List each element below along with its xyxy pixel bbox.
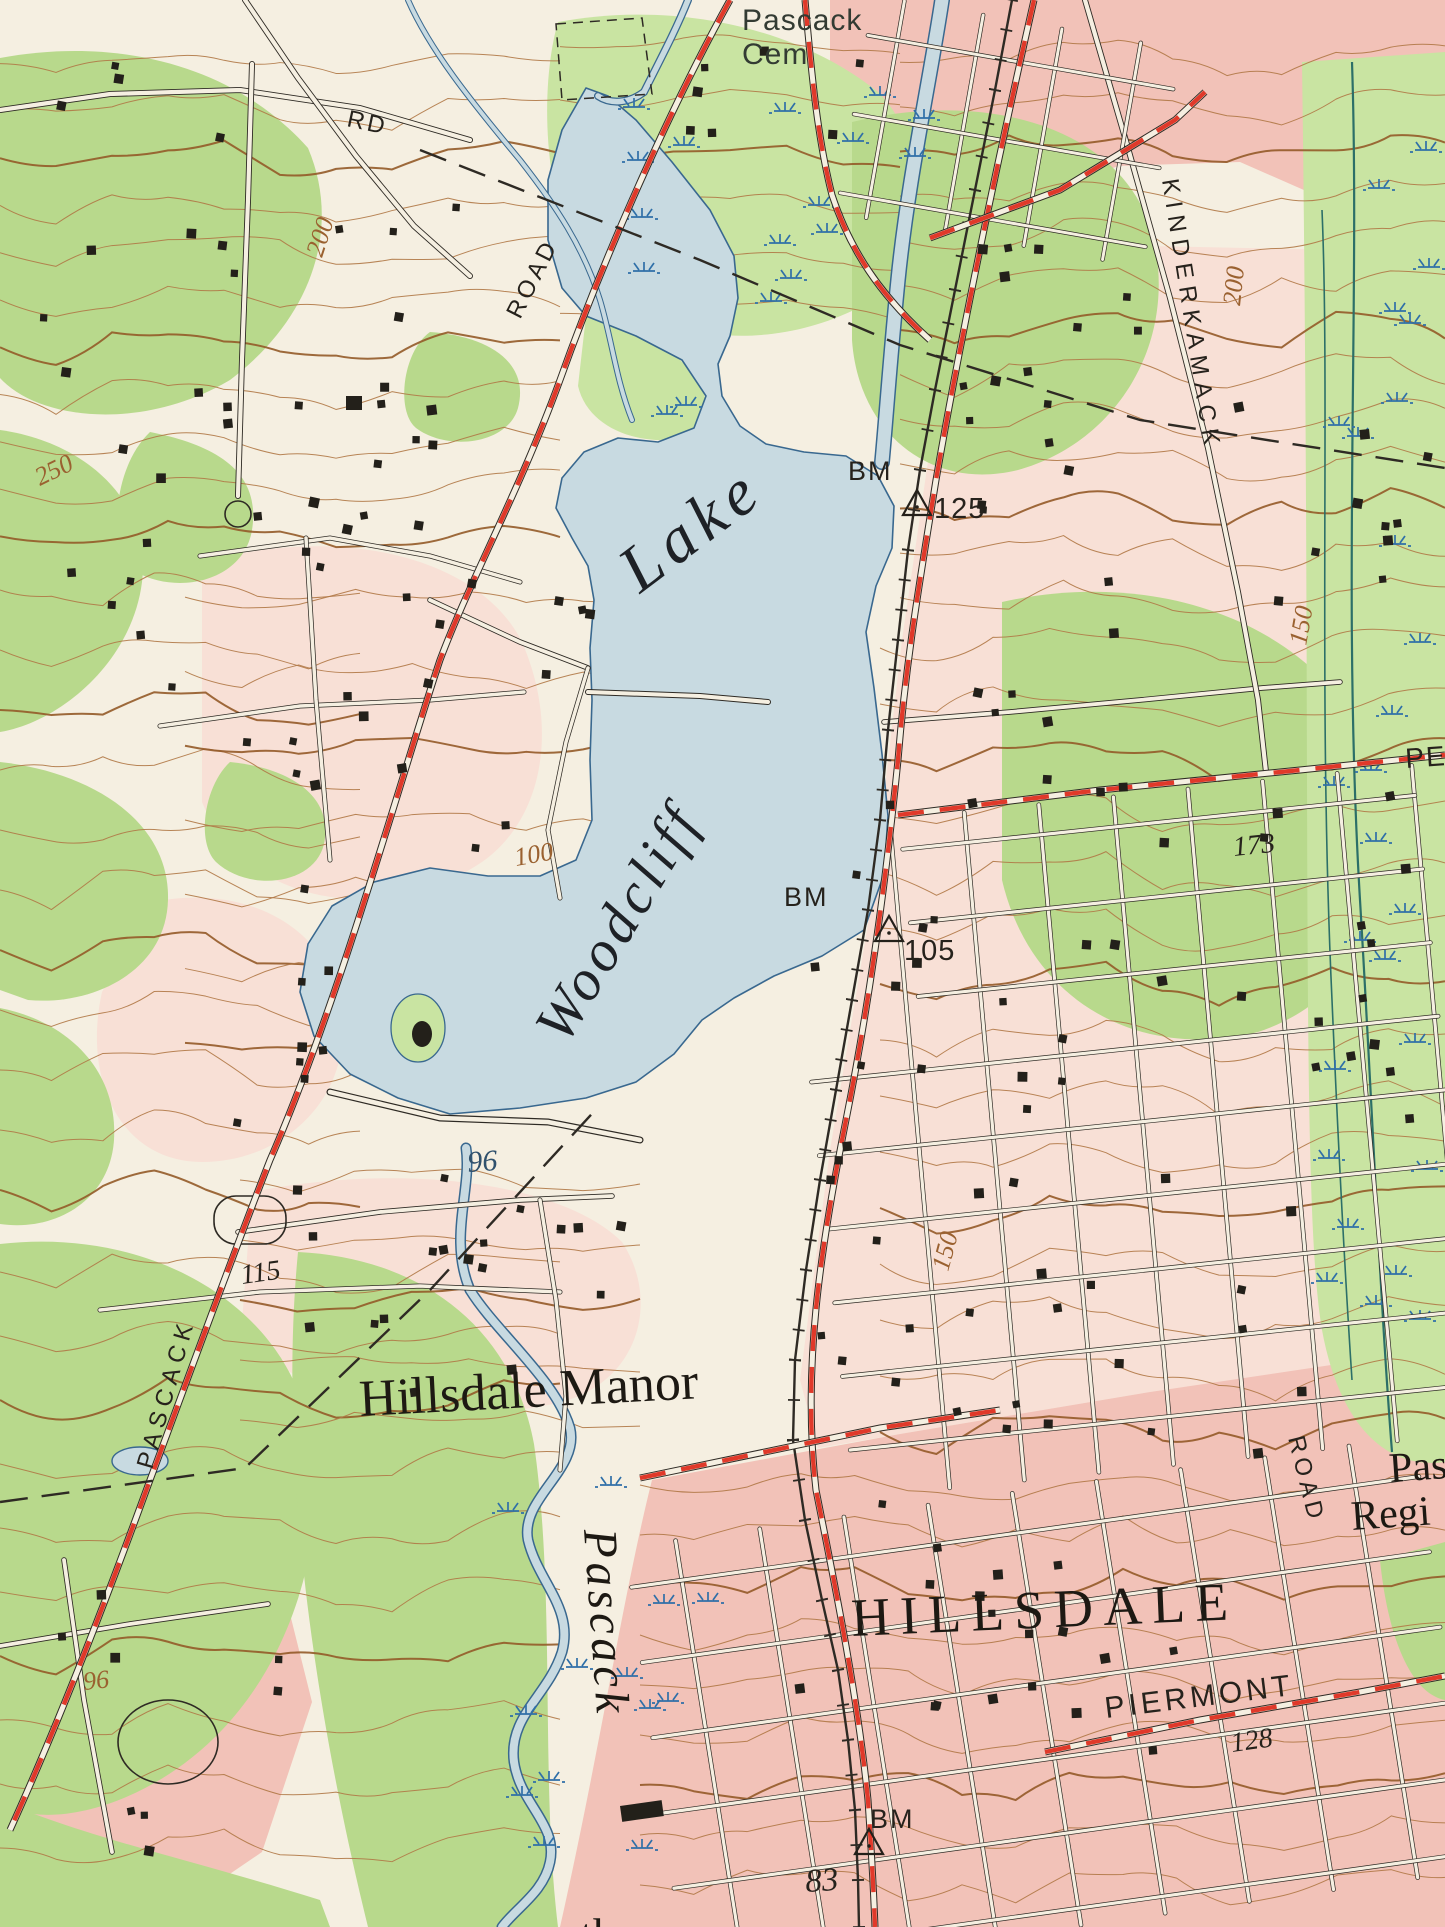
building-square: [516, 1205, 525, 1214]
railroad-tick: [882, 729, 894, 730]
building-square: [1045, 438, 1054, 447]
building-square: [1367, 939, 1375, 947]
building-square: [1058, 1077, 1066, 1085]
building-square: [1161, 1174, 1171, 1184]
building-square: [810, 962, 819, 971]
building-square: [292, 769, 300, 777]
building-square: [426, 405, 437, 416]
building-square: [438, 1245, 448, 1255]
building-square: [1044, 400, 1052, 408]
building-square: [113, 73, 124, 84]
building-square: [1357, 921, 1366, 930]
building-square: [1297, 1387, 1307, 1397]
bm-triangle-83-dot: [867, 1844, 871, 1848]
building-square: [959, 382, 967, 390]
building-square: [1311, 547, 1320, 556]
building-square: [110, 1653, 120, 1663]
building-square: [58, 1632, 66, 1640]
building-square: [1104, 577, 1113, 586]
building-square: [1134, 327, 1142, 335]
building-square: [1381, 522, 1390, 531]
spot-173: 173: [1231, 828, 1276, 863]
building-square: [1073, 323, 1082, 332]
building-square: [1004, 244, 1013, 253]
railroad-tick: [849, 1810, 861, 1811]
building-square: [293, 1185, 302, 1194]
building-square: [478, 1263, 488, 1273]
railroad-tick: [846, 1774, 858, 1775]
building-square: [377, 400, 386, 409]
building-square: [61, 367, 72, 378]
building-square: [289, 737, 297, 745]
building-square: [305, 1322, 315, 1332]
building-square: [324, 966, 333, 975]
building-square: [557, 1225, 566, 1234]
building-square: [253, 512, 262, 521]
building-square: [1238, 1325, 1247, 1334]
building-square: [999, 271, 1010, 282]
building-square: [708, 129, 717, 138]
building-square: [1053, 1303, 1062, 1312]
building-square: [56, 101, 66, 111]
building-square: [126, 577, 134, 585]
building-square: [373, 460, 382, 469]
bm-105-bm: BM: [784, 882, 829, 912]
building-square: [1096, 788, 1105, 797]
building-square: [194, 388, 203, 397]
building-square: [360, 511, 368, 519]
building-square: [1386, 1067, 1395, 1076]
building-square: [273, 1686, 282, 1695]
building-square: [215, 133, 225, 143]
building-square: [309, 1232, 318, 1241]
bm-125-num: 125: [934, 493, 985, 525]
building-square: [380, 383, 389, 392]
large-building: [346, 396, 362, 410]
building-square: [933, 1543, 942, 1552]
bm-triangle-125-dot: [915, 505, 919, 509]
building-square: [1359, 429, 1370, 440]
building-square: [1012, 1400, 1020, 1408]
building-square: [467, 579, 477, 589]
building-square: [1147, 1428, 1155, 1436]
building-square: [1156, 975, 1167, 986]
building-square: [701, 64, 708, 71]
building-square: [886, 801, 895, 810]
building-square: [818, 1332, 826, 1340]
building-square: [987, 1694, 998, 1705]
building-square: [223, 402, 232, 411]
building-square: [1346, 1051, 1356, 1061]
island-feature: [412, 1021, 432, 1047]
building-square: [1237, 1285, 1247, 1295]
lake-elev-96: 96: [466, 1144, 498, 1179]
bm-83-bm: BM: [870, 1804, 915, 1834]
building-square: [295, 401, 303, 409]
building-square: [616, 1221, 627, 1232]
building-square: [891, 1377, 900, 1386]
contour-200-ne: 200: [1217, 265, 1250, 307]
building-square: [302, 548, 310, 556]
building-square: [87, 245, 97, 255]
building-square: [428, 440, 437, 449]
pas-school-2: Regi: [1349, 1489, 1431, 1540]
building-square: [463, 1254, 474, 1265]
building-square: [394, 312, 404, 322]
building-square: [852, 870, 861, 879]
building-square: [1423, 452, 1433, 462]
bottom-edge-fragment: th: [580, 1909, 616, 1927]
building-square: [828, 130, 837, 139]
building-square: [1385, 791, 1395, 801]
building-square: [930, 916, 938, 924]
building-square: [501, 821, 509, 829]
building-square: [1009, 1178, 1019, 1188]
building-square: [1099, 1653, 1110, 1664]
building-square: [1119, 783, 1128, 792]
bm-105-num: 105: [904, 935, 955, 967]
building-square: [1352, 498, 1363, 509]
building-square: [1028, 1682, 1036, 1690]
building-square: [1071, 1708, 1081, 1718]
building-square: [1023, 1105, 1031, 1113]
building-square: [471, 844, 479, 852]
building-square: [223, 418, 233, 428]
building-square: [310, 779, 321, 790]
building-square: [423, 678, 434, 689]
building-square: [1237, 991, 1246, 1000]
building-square: [930, 1702, 939, 1711]
building-square: [1017, 1072, 1027, 1082]
building-square: [1379, 575, 1387, 583]
building-square: [40, 314, 48, 322]
building-square: [999, 998, 1007, 1006]
building-square: [298, 978, 306, 986]
building-square: [397, 763, 408, 774]
contour-96-sw: 96: [82, 1664, 111, 1696]
building-square: [1087, 1281, 1095, 1289]
building-square: [359, 711, 369, 721]
building-square: [1036, 1268, 1047, 1279]
building-square: [838, 1356, 847, 1365]
building-square: [1082, 940, 1092, 950]
railroad-tick: [877, 789, 889, 790]
building-square: [857, 1061, 865, 1069]
building-square: [143, 539, 152, 548]
building-square: [275, 1656, 283, 1664]
building-square: [585, 609, 595, 619]
building-square: [692, 86, 703, 97]
building-square: [144, 1845, 155, 1856]
building-square: [1369, 1039, 1380, 1050]
building-square: [156, 473, 166, 483]
building-square: [917, 1064, 926, 1073]
building-square: [440, 1174, 449, 1183]
pe-edge-label: PE: [1404, 740, 1445, 774]
building-square: [1148, 1746, 1157, 1755]
building-square: [965, 1308, 974, 1317]
building-square: [1058, 1034, 1068, 1044]
building-square: [403, 593, 411, 601]
building-square: [243, 738, 251, 746]
building-square: [301, 1075, 309, 1083]
building-square: [127, 1807, 136, 1816]
railroad-tick: [842, 1739, 854, 1740]
building-square: [953, 1407, 962, 1416]
topo-map-canvas: PascackCemRDROAD200250KINDERKAMACK200150…: [0, 0, 1445, 1927]
building-square: [67, 568, 76, 577]
bm-triangle-105-dot: [887, 931, 891, 935]
railroad-tick: [879, 759, 891, 760]
building-square: [990, 375, 1001, 386]
building-square: [1002, 1425, 1011, 1434]
building-square: [1286, 1206, 1296, 1216]
building-square: [1159, 838, 1169, 848]
building-square: [1109, 628, 1119, 638]
building-square: [878, 1500, 886, 1508]
spot-115: 115: [239, 1255, 283, 1291]
building-square: [835, 1156, 843, 1164]
building-square: [186, 228, 196, 238]
building-square: [316, 563, 325, 572]
building-square: [1169, 1646, 1178, 1655]
building-square: [1358, 994, 1367, 1003]
building-square: [842, 1141, 852, 1151]
building-square: [573, 1223, 583, 1233]
building-square: [218, 241, 228, 251]
spot-83: 83: [804, 1862, 839, 1900]
building-square: [1043, 775, 1052, 784]
building-square: [233, 1118, 242, 1127]
pascack-cem-line1: Pascack: [742, 4, 862, 37]
building-square: [480, 1239, 488, 1247]
spot-128: 128: [1229, 1722, 1275, 1759]
building-square: [991, 709, 999, 717]
building-square: [1008, 690, 1016, 698]
building-square: [891, 981, 900, 990]
building-square: [296, 1058, 304, 1066]
building-square: [1053, 1561, 1062, 1570]
building-square: [118, 444, 128, 454]
building-square: [1110, 939, 1121, 950]
building-square: [1274, 596, 1284, 606]
building-square: [318, 1046, 327, 1055]
building-square: [435, 619, 445, 629]
building-square: [967, 798, 977, 808]
building-square: [300, 884, 309, 893]
building-square: [389, 228, 397, 236]
building-square: [342, 524, 353, 535]
building-square: [136, 631, 145, 640]
building-square: [1034, 244, 1044, 254]
building-square: [973, 687, 984, 698]
building-square: [1044, 1419, 1053, 1428]
building-square: [231, 270, 239, 278]
building-square: [452, 204, 460, 212]
building-square: [1114, 1359, 1123, 1368]
building-square: [370, 1320, 378, 1328]
building-square: [111, 62, 119, 70]
building-square: [905, 1324, 914, 1333]
building-square: [1042, 716, 1053, 727]
building-square: [1405, 1114, 1414, 1123]
building-square: [795, 1683, 806, 1694]
building-square: [1253, 1448, 1264, 1459]
building-square: [1314, 1017, 1323, 1026]
building-square: [554, 596, 564, 606]
building-square: [542, 670, 551, 679]
building-square: [686, 126, 695, 135]
building-square: [108, 601, 116, 609]
building-square: [97, 1590, 107, 1600]
building-square: [429, 1247, 438, 1256]
building-square: [1063, 465, 1074, 476]
building-square: [1023, 367, 1032, 376]
pas-school-1: Pas: [1387, 1442, 1445, 1492]
building-square: [826, 1175, 835, 1184]
building-square: [141, 1812, 148, 1819]
building-square: [1393, 519, 1402, 528]
building-square: [1233, 402, 1244, 413]
building-square: [1123, 293, 1131, 301]
building-square: [918, 923, 928, 933]
building-square: [1401, 864, 1411, 874]
building-square: [856, 59, 864, 67]
building-square: [168, 683, 176, 691]
building-square: [966, 417, 973, 424]
building-square: [297, 1042, 307, 1052]
building-square: [308, 497, 320, 509]
pascack-cem-line2: Cem: [742, 38, 808, 71]
building-square: [974, 1188, 984, 1198]
topo-map-scan: PascackCemRDROAD200250KINDERKAMACK200150…: [0, 0, 1445, 1927]
building-square: [978, 244, 989, 255]
building-square: [1311, 1062, 1320, 1071]
building-square: [412, 436, 419, 443]
building-square: [1272, 808, 1283, 819]
building-square: [414, 520, 424, 530]
building-square: [597, 1291, 605, 1299]
building-square: [380, 1314, 389, 1323]
bm-125-bm: BM: [848, 456, 893, 486]
building-square: [1383, 535, 1393, 545]
building-square: [873, 1236, 881, 1244]
building-square: [343, 692, 352, 701]
building-square: [993, 1569, 1003, 1579]
